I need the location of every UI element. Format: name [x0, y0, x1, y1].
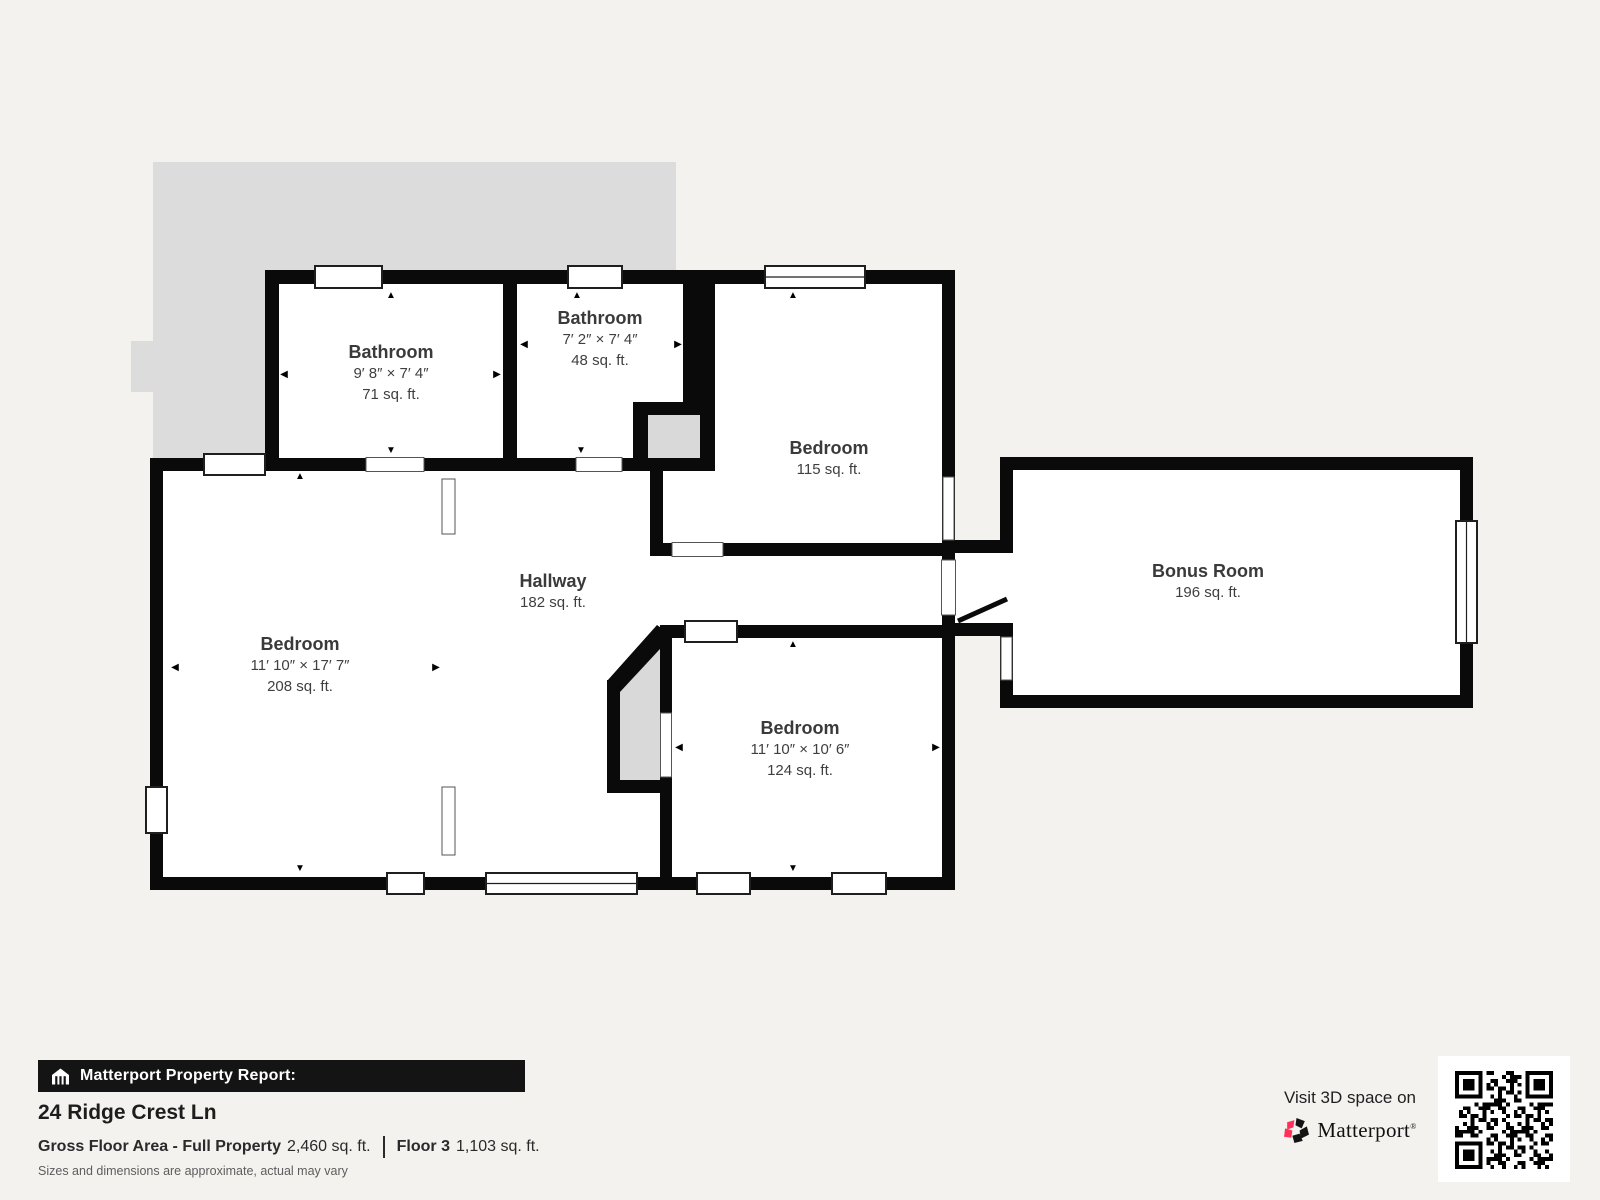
qr-code-image [1455, 1071, 1553, 1169]
room-area: 182 sq. ft. [519, 592, 586, 613]
room-area: 115 sq. ft. [789, 459, 868, 480]
property-address: 24 Ridge Crest Ln [38, 1101, 217, 1125]
property-report-page: { "plan": { "rooms": [ {"key":"bathroom-… [0, 0, 1600, 1200]
floor-area-value: 1,103 sq. ft. [456, 1138, 540, 1156]
dimension-arrow-right-icon: ▶ [674, 340, 682, 350]
dimension-arrow-left-icon: ◀ [520, 340, 528, 350]
room-area: 208 sq. ft. [251, 676, 350, 697]
visit-3d-space-link[interactable]: Visit 3D space on Matterport® [1255, 1088, 1445, 1144]
room-area: 71 sq. ft. [349, 384, 434, 405]
report-banner-title: Matterport Property Report: [80, 1067, 296, 1085]
matterport-logo: Matterport® [1255, 1117, 1445, 1144]
dimension-arrow-up-icon: ▲ [788, 640, 798, 650]
room-label-bonus-room: Bonus Room 196 sq. ft. [1152, 561, 1264, 603]
room-dimensions: 7′ 2″ × 7′ 4″ [558, 329, 643, 350]
dimension-arrow-left-icon: ◀ [280, 370, 288, 380]
floor-area-stats: Gross Floor Area - Full Property 2,460 s… [38, 1136, 540, 1158]
dimension-arrow-right-icon: ▶ [932, 743, 940, 753]
dimension-arrow-down-icon: ▼ [788, 864, 798, 874]
dimension-arrow-right-icon: ▶ [493, 370, 501, 380]
house-icon [51, 1068, 70, 1085]
room-name: Bathroom [558, 308, 643, 329]
floor-plan-drawing [0, 0, 1600, 1200]
room-dimensions: 9′ 8″ × 7′ 4″ [349, 363, 434, 384]
dimension-arrow-left-icon: ◀ [675, 743, 683, 753]
room-area: 124 sq. ft. [751, 760, 850, 781]
matterport-wordmark: Matterport® [1317, 1118, 1416, 1143]
dimension-arrow-left-icon: ◀ [171, 663, 179, 673]
floor-label: Floor 3 [397, 1138, 450, 1156]
room-name: Bathroom [349, 342, 434, 363]
dimension-arrow-down-icon: ▼ [386, 446, 396, 456]
gross-floor-area-label: Gross Floor Area - Full Property [38, 1138, 281, 1156]
room-area: 48 sq. ft. [558, 350, 643, 371]
room-label-bathroom-2: Bathroom 7′ 2″ × 7′ 4″ 48 sq. ft. [558, 308, 643, 371]
room-label-bedroom-left: Bedroom 11′ 10″ × 17′ 7″ 208 sq. ft. [251, 634, 350, 697]
report-banner: Matterport Property Report: [38, 1060, 525, 1092]
matterport-pinwheel-icon [1283, 1117, 1310, 1144]
dimension-arrow-up-icon: ▲ [295, 472, 305, 482]
dimension-arrow-up-icon: ▲ [572, 291, 582, 301]
dimension-arrow-right-icon: ▶ [432, 663, 440, 673]
dimension-arrow-down-icon: ▼ [295, 864, 305, 874]
gross-floor-area-value: 2,460 sq. ft. [287, 1138, 371, 1156]
room-name: Bonus Room [1152, 561, 1264, 582]
trademark-symbol: ® [1410, 1122, 1416, 1131]
room-area: 196 sq. ft. [1152, 582, 1264, 603]
room-dimensions: 11′ 10″ × 17′ 7″ [251, 655, 350, 676]
room-label-bedroom-bottom: Bedroom 11′ 10″ × 10′ 6″ 124 sq. ft. [751, 718, 850, 781]
qr-code [1438, 1056, 1570, 1182]
room-name: Bedroom [251, 634, 350, 655]
dimension-arrow-up-icon: ▲ [788, 291, 798, 301]
room-label-hallway: Hallway 182 sq. ft. [519, 571, 586, 613]
room-name: Bedroom [789, 438, 868, 459]
dimension-arrow-down-icon: ▼ [576, 446, 586, 456]
room-dimensions: 11′ 10″ × 10′ 6″ [751, 739, 850, 760]
room-label-bedroom-top: Bedroom 115 sq. ft. [789, 438, 868, 480]
stats-divider [383, 1136, 385, 1158]
room-name: Hallway [519, 571, 586, 592]
room-name: Bedroom [751, 718, 850, 739]
disclaimer-text: Sizes and dimensions are approximate, ac… [38, 1164, 348, 1178]
dimension-arrow-up-icon: ▲ [386, 291, 396, 301]
room-label-bathroom-1: Bathroom 9′ 8″ × 7′ 4″ 71 sq. ft. [349, 342, 434, 405]
visit-3d-space-text: Visit 3D space on [1255, 1088, 1445, 1108]
